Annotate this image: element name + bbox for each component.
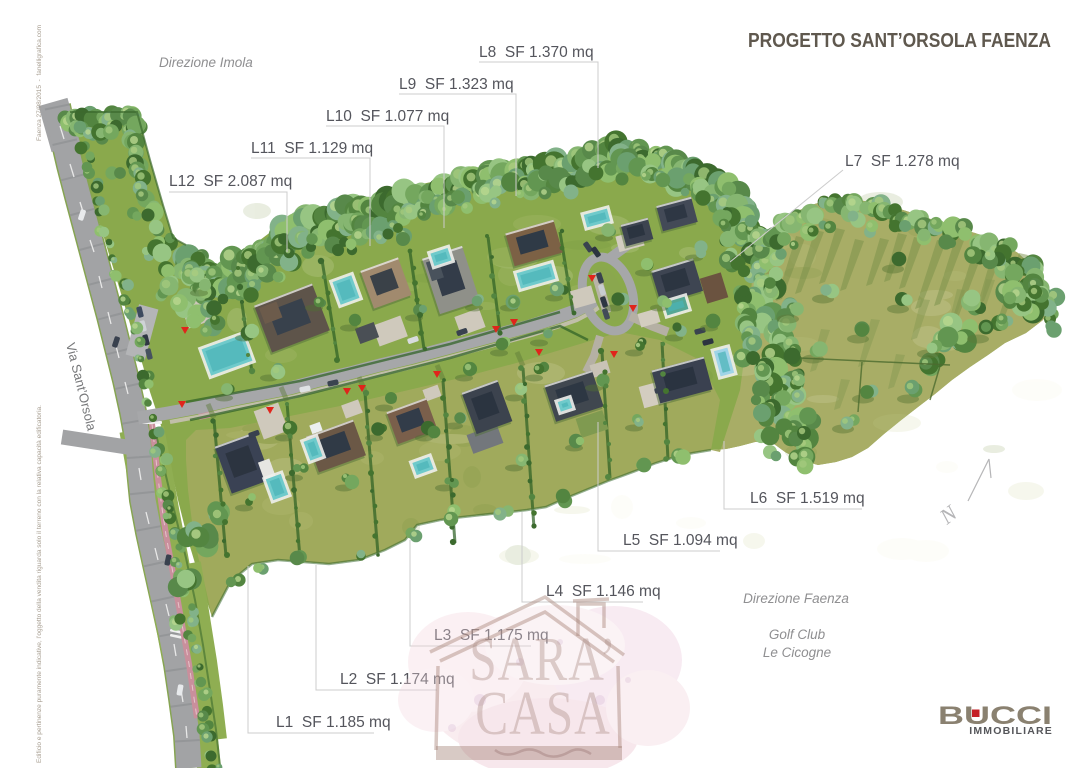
svg-text:Edificio e pertinenze purament: Edificio e pertinenze puramente indicati…	[36, 405, 43, 763]
svg-text:L7 SF 1.278 mq: L7 SF 1.278 mq	[845, 153, 960, 170]
svg-text:L10 SF 1.077 mq: L10 SF 1.077 mq	[326, 108, 449, 125]
svg-text:Le Cicogne: Le Cicogne	[763, 645, 831, 660]
svg-text:L5 SF 1.094 mq: L5 SF 1.094 mq	[623, 532, 738, 549]
svg-text:CASA: CASA	[475, 680, 611, 749]
svg-text:L11 SF 1.129 mq: L11 SF 1.129 mq	[251, 140, 373, 157]
svg-text:L9 SF 1.323 mq: L9 SF 1.323 mq	[399, 76, 514, 93]
svg-text:L8 SF 1.370 mq: L8 SF 1.370 mq	[479, 44, 594, 61]
svg-text:IMMOBILIARE: IMMOBILIARE	[969, 725, 1053, 737]
svg-text:Faenza 27/08/2015 - fanellig: Faenza 27/08/2015 - fanelligrafica.com	[36, 25, 43, 141]
svg-text:Golf Club: Golf Club	[769, 627, 826, 642]
svg-text:PROGETTO SANT’ORSOLA FAENZA: PROGETTO SANT’ORSOLA FAENZA	[748, 30, 1051, 52]
svg-text:L1 SF 1.185 mq: L1 SF 1.185 mq	[276, 714, 391, 731]
svg-text:L12 SF 2.087 mq: L12 SF 2.087 mq	[169, 173, 292, 190]
svg-text:L4 SF 1.146 mq: L4 SF 1.146 mq	[546, 583, 661, 600]
svg-text:L6 SF 1.519 mq: L6 SF 1.519 mq	[750, 490, 865, 507]
svg-text:Direzione Faenza: Direzione Faenza	[743, 591, 849, 606]
svg-text:Direzione Imola: Direzione Imola	[159, 55, 253, 70]
